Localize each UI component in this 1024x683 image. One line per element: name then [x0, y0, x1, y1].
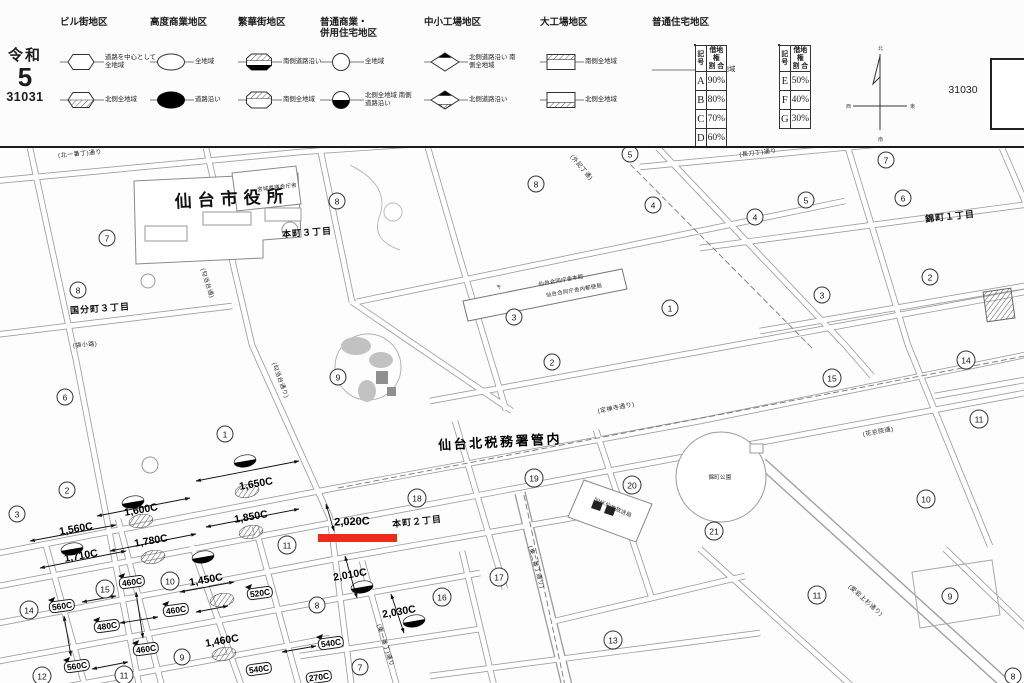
- roundabout: [142, 457, 158, 473]
- sheet-id-block: 令和 5 31031: [0, 48, 50, 104]
- table-header: 借地権 割 合: [790, 46, 810, 72]
- sheet-number: 31031: [0, 91, 50, 104]
- park-green: [358, 380, 376, 402]
- park-green: [369, 352, 393, 368]
- legend-district-5: 中小工場地区北側道路沿い 南側全地域北側道路沿い: [424, 18, 516, 29]
- leasehold-symbol: A: [696, 72, 707, 91]
- leasehold-symbol: E: [780, 72, 791, 91]
- legend-district-4: 普通商業・ 併用住宅地区全地域北側全地域 南側道路沿い: [320, 18, 412, 40]
- legend-row-label: 北側全地域: [585, 96, 637, 104]
- district-symbol-icon: [540, 50, 584, 74]
- legend-row: 北側道路沿い 南側全地域: [424, 50, 521, 74]
- courtyard: [265, 208, 301, 221]
- roundabout: [282, 222, 298, 238]
- district-symbol-icon: [320, 88, 364, 112]
- highlighted-road-segment: [318, 534, 397, 542]
- legend-row: 南側全地域: [540, 50, 637, 74]
- legend-district-title: ビル街地区: [60, 18, 152, 29]
- hatched-building: [983, 288, 1015, 322]
- legend-row-label: 北側全地域 南側道路沿い: [365, 92, 417, 107]
- legend-district-title: 普通商業・ 併用住宅地区: [320, 18, 412, 40]
- table-header: 記号: [780, 46, 791, 72]
- legend-district-1: ビル街地区道路を中心として全地域北側全地域: [60, 18, 152, 29]
- leasehold-ratio: 30%: [790, 110, 810, 129]
- legend-row: 北側全地域 南側道路沿い: [320, 88, 417, 112]
- svg-text:南: 南: [878, 136, 883, 143]
- leasehold-symbol: C: [696, 110, 707, 129]
- svg-text:東: 東: [910, 103, 915, 110]
- district-symbol-icon: [238, 88, 282, 112]
- legend-row: 道路沿い: [150, 88, 247, 112]
- district-symbol-icon: [150, 88, 194, 112]
- legend-district-title: 中小工場地区: [424, 18, 516, 29]
- leasehold-ratio: 90%: [706, 72, 726, 91]
- era-year: 5: [0, 64, 50, 91]
- legend-district-3: 繁華街地区南側道路沿い南側全地域: [238, 18, 330, 29]
- legend-district-title: 大工場地区: [540, 18, 632, 29]
- district-symbol-icon: [60, 50, 104, 74]
- svg-text:西: 西: [846, 104, 851, 110]
- header-separator: [0, 146, 1024, 148]
- plaza-building: [387, 387, 396, 396]
- legend-district-2: 高度商業地区全地域道路沿い: [150, 18, 242, 29]
- compass-icon: 北 南 西 東: [845, 40, 925, 144]
- header: 令和 5 31031 ビル街地区道路を中心として全地域北側全地域高度商業地区全地…: [0, 0, 1024, 146]
- legend-district-6: 大工場地区南側全地域北側全地域: [540, 18, 632, 29]
- district-symbol-icon: [60, 88, 104, 112]
- park-structure: [750, 444, 763, 453]
- courtyard: [203, 212, 251, 225]
- adjacent-sheet-box: [990, 58, 1024, 130]
- leasehold-ratio: 70%: [706, 110, 726, 129]
- park-pond: [384, 203, 402, 221]
- district-symbol-icon: [238, 50, 282, 74]
- legend-row-label: 全地域: [365, 58, 417, 66]
- leasehold-table-2: 記号借地権 割 合E50%F40%G30%: [778, 44, 780, 46]
- district-symbol-icon: [150, 50, 194, 74]
- legend-row: 北側全地域: [60, 88, 157, 112]
- table-header: 記号: [696, 46, 707, 72]
- legend-row: 道路を中心として全地域: [60, 50, 157, 74]
- legend-district-title: 高度商業地区: [150, 18, 242, 29]
- legend-row: 北側全地域: [540, 88, 637, 112]
- legend-row-label: 北側道路沿い 南側全地域: [469, 54, 521, 69]
- leasehold-ratio: 40%: [790, 91, 810, 110]
- district-symbol-icon: [540, 88, 584, 112]
- legend-row-label: 南側全地域: [585, 58, 637, 66]
- leasehold-symbol: G: [780, 110, 791, 129]
- leasehold-ratio: 80%: [706, 91, 726, 110]
- park-green: [341, 337, 371, 355]
- prefectural-assembly-building: [232, 166, 301, 211]
- legend-row: 全地域: [150, 50, 247, 74]
- leasehold-symbol: B: [696, 91, 707, 110]
- table-header: 借地権 割 合: [706, 46, 726, 72]
- legend-district-title: 繁華街地区: [238, 18, 330, 29]
- legend-district-title: 普通住宅地区: [652, 18, 744, 29]
- plaza-building: [376, 371, 388, 384]
- legend-row: 北側道路沿い: [424, 88, 521, 112]
- district-symbol-icon: [424, 50, 468, 74]
- district-symbol-icon: [652, 58, 696, 82]
- legend-row: 全地域: [320, 50, 417, 74]
- leasehold-ratio: 50%: [790, 72, 810, 91]
- adjacent-sheet-number: 31030: [938, 84, 988, 96]
- legend-district-7: 普通住宅地区無印は全地域: [652, 18, 744, 29]
- courtyard: [145, 226, 187, 241]
- district-symbol-icon: [320, 50, 364, 74]
- svg-text:北: 北: [878, 45, 883, 52]
- roundabout: [141, 274, 155, 288]
- legend-row-label: 北側道路沿い: [469, 96, 521, 104]
- rosenka-map-sheet: 仙台市役所宮城県議会庁舎国分町３丁目本町３丁目本町２丁目錦町１丁目仙台北税務署管…: [0, 0, 1024, 683]
- district-symbol-icon: [424, 88, 468, 112]
- leasehold-symbol: F: [780, 91, 791, 110]
- leasehold-table-1: 記号借地権 割 合A90%B80%C70%D60%: [694, 44, 696, 46]
